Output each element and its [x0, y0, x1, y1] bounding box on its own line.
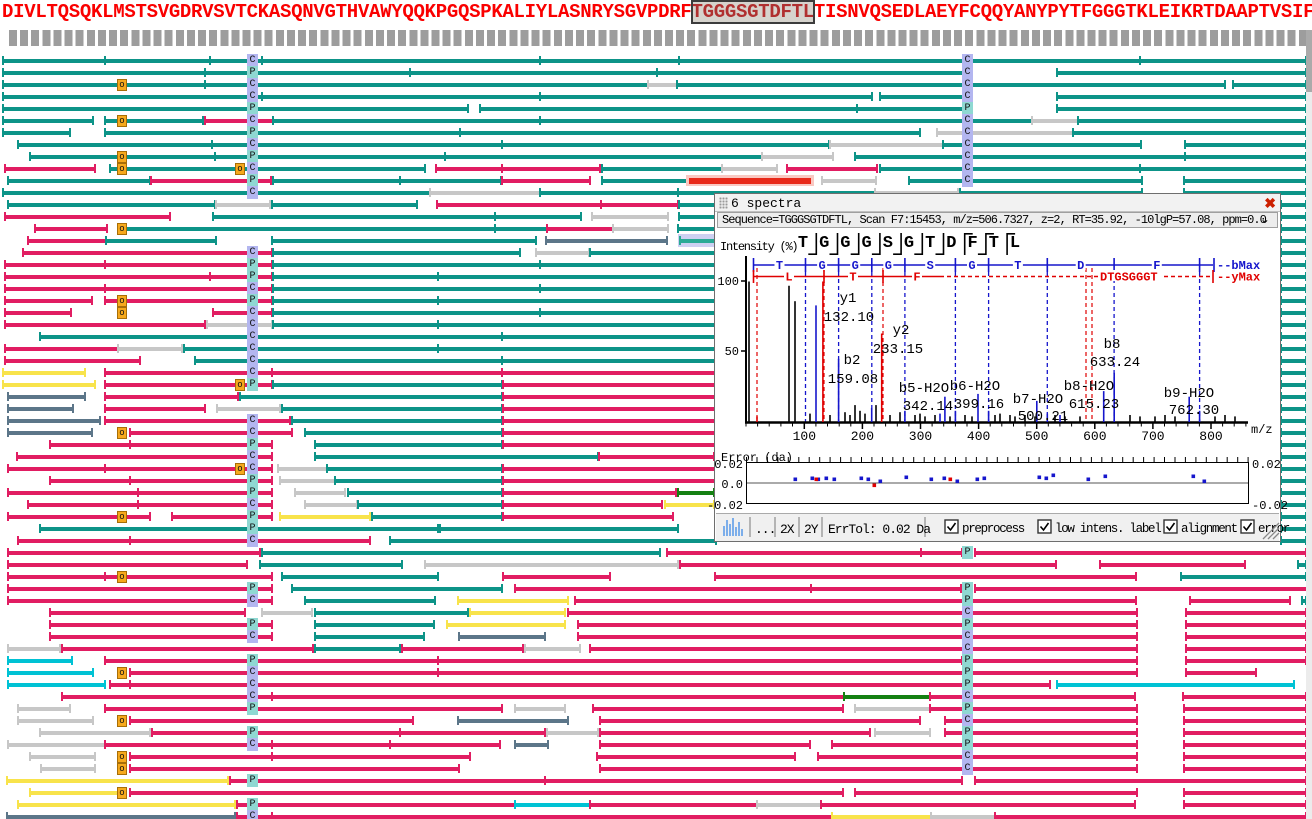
svg-text:F: F	[913, 271, 920, 285]
svg-text:m/z: m/z	[1251, 423, 1273, 437]
svg-text:G: G	[885, 259, 892, 273]
svg-text:633.24: 633.24	[1090, 355, 1140, 371]
svg-text:50: 50	[725, 345, 739, 359]
svg-text:ErrTol: 0.02 Da: ErrTol: 0.02 Da	[828, 522, 931, 537]
svg-text:800: 800	[1199, 429, 1222, 444]
svg-text:--yMax: --yMax	[1217, 271, 1260, 285]
svg-text:399.16: 399.16	[954, 397, 1004, 413]
svg-text:500: 500	[1025, 429, 1048, 444]
svg-text:T: T	[1014, 259, 1021, 273]
svg-text:G: G	[968, 259, 975, 273]
svg-text:-0.02: -0.02	[707, 499, 743, 513]
svg-text:233.15: 233.15	[873, 342, 923, 358]
svg-text:T: T	[776, 259, 783, 273]
svg-text:500.21: 500.21	[1018, 409, 1068, 425]
svg-text:b2: b2	[844, 353, 861, 369]
svg-text:preprocess: preprocess	[962, 522, 1025, 536]
svg-text:D: D	[1077, 259, 1084, 273]
svg-text:S: S	[927, 259, 934, 273]
svg-text:-0.02: -0.02	[1252, 499, 1288, 513]
svg-text:159.08: 159.08	[828, 372, 878, 388]
svg-text:100: 100	[717, 275, 739, 289]
svg-text:132.10: 132.10	[824, 310, 874, 326]
svg-text:y1: y1	[840, 291, 857, 307]
svg-text:b8-H2O: b8-H2O	[1064, 379, 1114, 395]
svg-text:2X: 2X	[780, 522, 795, 537]
svg-text:762.30: 762.30	[1169, 403, 1219, 419]
svg-text:600: 600	[1083, 429, 1106, 444]
svg-text:b9-H2O: b9-H2O	[1164, 386, 1214, 402]
svg-text:L: L	[785, 271, 792, 285]
svg-text:b5-H2O: b5-H2O	[899, 381, 949, 397]
svg-text:b7-H2O: b7-H2O	[1013, 392, 1063, 408]
svg-text:2Y: 2Y	[804, 522, 819, 537]
svg-text:0.0: 0.0	[721, 478, 743, 492]
svg-text:y2: y2	[893, 323, 910, 339]
svg-text:b8: b8	[1104, 337, 1121, 353]
svg-text:400: 400	[967, 429, 990, 444]
svg-text:300: 300	[909, 429, 932, 444]
svg-text:...: ...	[755, 522, 775, 537]
svg-text:700: 700	[1141, 429, 1164, 444]
svg-text:0.02: 0.02	[714, 458, 743, 472]
svg-text:200: 200	[851, 429, 874, 444]
svg-text:342.14: 342.14	[903, 399, 953, 415]
svg-text:0.02: 0.02	[1252, 458, 1281, 472]
svg-text:615.23: 615.23	[1069, 397, 1119, 413]
svg-text:alignment: alignment	[1181, 522, 1238, 536]
svg-text:b6-H2O: b6-H2O	[950, 379, 1000, 395]
svg-text:DTGSGGGT: DTGSGGGT	[1100, 271, 1158, 285]
svg-text:T: T	[849, 271, 856, 285]
svg-text:100: 100	[793, 429, 816, 444]
svg-text:low intens. label: low intens. label	[1055, 522, 1161, 536]
